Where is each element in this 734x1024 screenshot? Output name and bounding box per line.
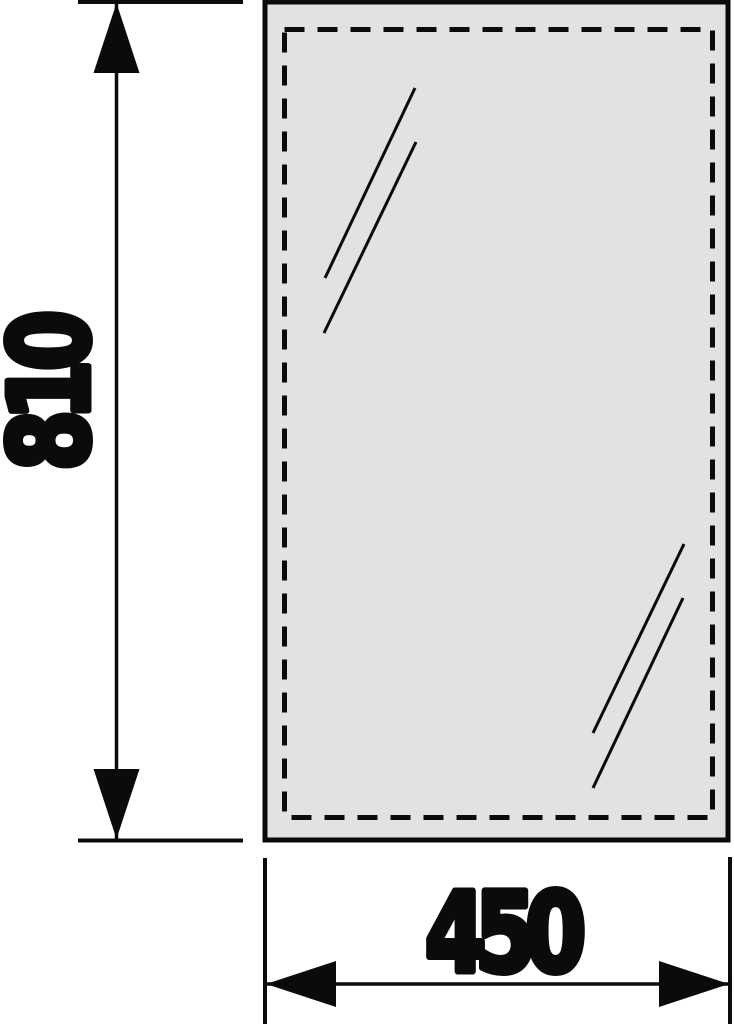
height-dimension-label: 810 bbox=[0, 314, 115, 471]
width-arrowhead-left-icon bbox=[266, 961, 336, 1007]
width-arrowhead-right-icon bbox=[659, 961, 729, 1007]
width-dimension-label: 450 bbox=[425, 871, 582, 998]
dimension-drawing: 810 450 bbox=[0, 0, 734, 1024]
technical-drawing-canvas: 810 450 bbox=[0, 0, 734, 1024]
height-arrowhead-up-icon bbox=[94, 3, 140, 73]
height-arrowhead-down-icon bbox=[94, 769, 140, 839]
mirror-panel bbox=[265, 2, 728, 840]
